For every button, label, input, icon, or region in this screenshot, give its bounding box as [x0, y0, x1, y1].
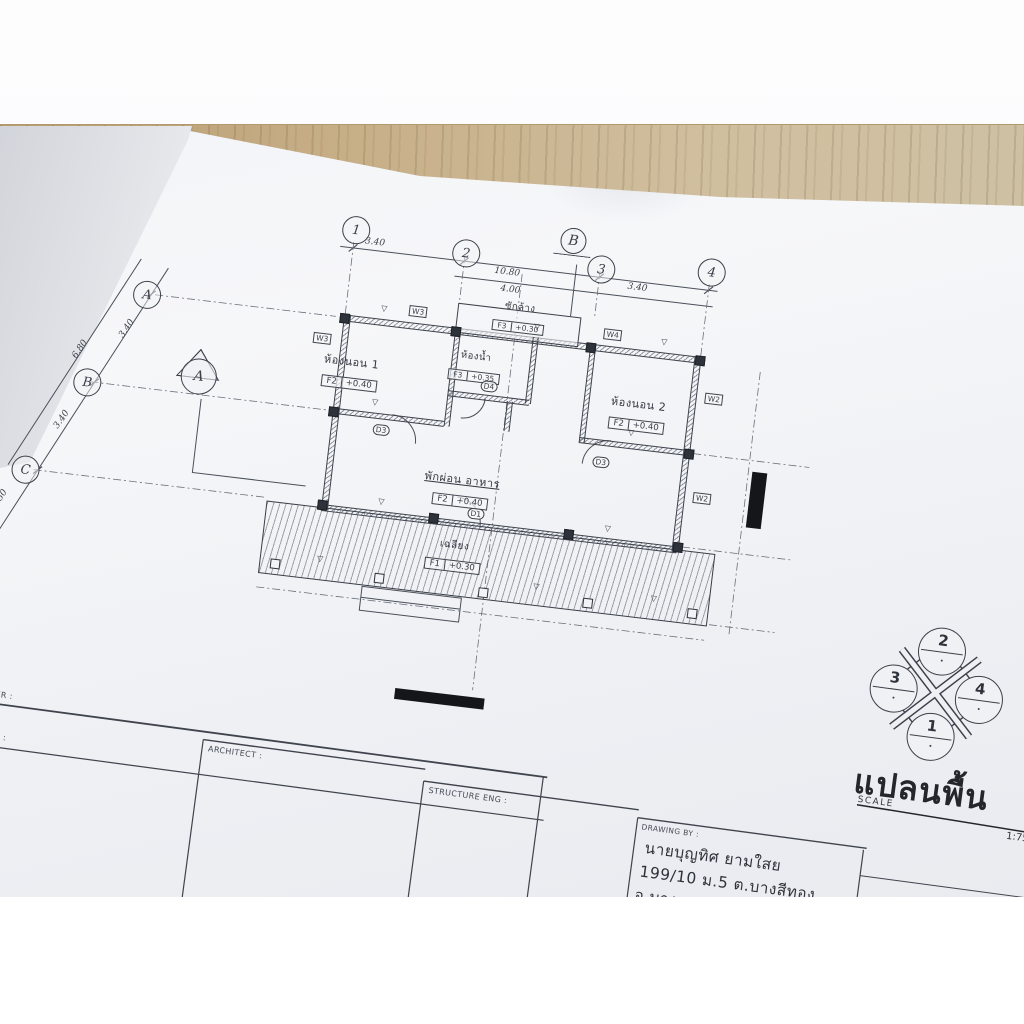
level-mark-icon: ▽	[378, 497, 385, 507]
porch-post	[270, 558, 281, 569]
titleblock-left-fragment: N :	[0, 732, 7, 743]
titleblock-owner-fragment: ER :	[0, 690, 13, 701]
column-marker	[450, 326, 461, 337]
porch-post	[478, 587, 489, 598]
window-tag-w4: W4	[603, 328, 622, 341]
photo-area: 1 2 3 4 A B C 3.40 10.80 4.00 3.40 3.40 …	[0, 0, 1024, 897]
level-mark-icon: ▽	[381, 304, 388, 314]
column-marker	[672, 542, 683, 553]
porch-post	[374, 573, 385, 584]
level-mark-icon: ▽	[628, 428, 635, 438]
level-mark-icon: ▽	[533, 582, 540, 592]
column-marker	[317, 500, 328, 511]
level-mark-icon: ▽	[317, 554, 324, 564]
window-tag-w2: W2	[692, 492, 711, 505]
level-mark-icon: ▽	[650, 594, 657, 604]
level-mark-icon: ▽	[604, 524, 611, 534]
column-marker	[339, 313, 350, 324]
window-tag-w2: W2	[704, 393, 723, 406]
column-marker	[585, 342, 596, 353]
column-marker	[683, 449, 694, 460]
level-mark-icon: ▽	[371, 397, 378, 407]
column-marker	[695, 355, 706, 366]
column-marker	[428, 513, 439, 524]
door-tag-d3: D3	[592, 456, 610, 469]
window-tag-w3: W3	[408, 305, 427, 318]
window-tag-w3: W3	[313, 332, 332, 345]
door-tag-d3: D3	[372, 424, 390, 437]
level-mark-icon: ▽	[534, 322, 541, 332]
section-marker-b: B	[559, 227, 588, 256]
level-mark-icon: ▽	[661, 337, 668, 347]
door-tag-d4: D4	[480, 380, 498, 393]
porch-post	[687, 608, 698, 619]
column-marker	[328, 406, 339, 417]
column-marker	[563, 529, 574, 540]
door-tag-d1: D1	[467, 507, 485, 520]
photo-of-floor-plan-sheet: 1 2 3 4 A B C 3.40 10.80 4.00 3.40 3.40 …	[0, 0, 1024, 1024]
sheet-title-area: 2 3 4 1 แปลนพื้น SCALE 1:75	[816, 600, 1024, 897]
porch-post	[582, 598, 593, 609]
